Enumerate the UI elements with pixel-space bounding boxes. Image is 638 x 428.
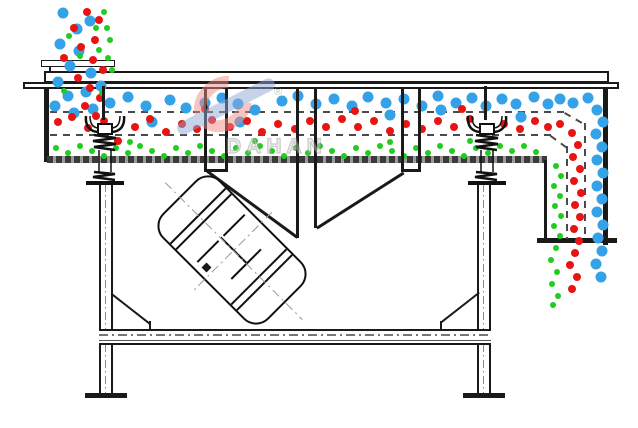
green-particle-dot xyxy=(107,37,113,43)
red-particle-dot xyxy=(556,120,564,128)
red-particle-dot xyxy=(243,117,251,125)
green-particle-dot xyxy=(281,153,287,159)
green-particle-dot xyxy=(269,148,275,154)
green-particle-dot xyxy=(61,88,67,94)
green-particle-dot xyxy=(553,245,559,251)
green-particle-dot xyxy=(558,173,564,179)
green-particle-dot xyxy=(425,150,431,156)
red-particle-dot xyxy=(81,102,89,110)
green-particle-dot xyxy=(550,302,556,308)
red-particle-dot xyxy=(258,128,266,136)
support-foot-left xyxy=(85,393,127,398)
blue-particle-dot xyxy=(58,8,69,19)
green-particle-dot xyxy=(353,145,359,151)
blue-particle-dot xyxy=(591,259,602,270)
green-particle-dot xyxy=(557,193,563,199)
blue-particle-dot xyxy=(598,220,609,231)
blue-particle-dot xyxy=(436,105,447,116)
motor-flange-line-1 xyxy=(223,214,246,237)
blue-particle-dot xyxy=(233,99,244,110)
red-particle-dot xyxy=(193,125,201,133)
blue-particle-dot xyxy=(385,110,396,121)
base-beam-inner-line xyxy=(99,340,491,341)
blue-particle-dot xyxy=(497,94,508,105)
red-particle-dot xyxy=(322,123,330,131)
center-hanger-left xyxy=(296,88,299,238)
red-particle-dot xyxy=(99,66,107,74)
spring-hanger-rod-left xyxy=(102,86,105,120)
blue-particle-dot xyxy=(250,105,261,116)
green-particle-dot xyxy=(558,213,564,219)
green-particle-dot xyxy=(341,153,347,159)
blue-particle-dot xyxy=(597,246,608,257)
red-particle-dot xyxy=(458,105,466,113)
green-particle-dot xyxy=(53,145,59,151)
red-particle-dot xyxy=(86,84,94,92)
motor-flange-line-2 xyxy=(197,240,220,263)
support-leg-right xyxy=(477,184,491,394)
blue-particle-dot xyxy=(592,105,603,116)
blue-particle-dot xyxy=(105,98,116,109)
green-particle-dot xyxy=(365,150,371,156)
hanger-boot-2-left xyxy=(401,88,404,172)
green-particle-dot xyxy=(551,183,557,189)
green-particle-dot xyxy=(257,143,263,149)
blue-particle-dot xyxy=(381,98,392,109)
green-particle-dot xyxy=(553,163,559,169)
red-particle-dot xyxy=(274,120,282,128)
green-particle-dot xyxy=(552,203,558,209)
blue-particle-dot xyxy=(592,155,603,166)
red-particle-dot xyxy=(576,165,584,173)
red-particle-dot xyxy=(386,127,394,135)
blue-particle-dot xyxy=(165,95,176,106)
green-particle-dot xyxy=(65,150,71,156)
red-particle-dot xyxy=(89,56,97,64)
blue-particle-dot xyxy=(568,98,579,109)
blue-particle-dot xyxy=(555,94,566,105)
blue-particle-dot xyxy=(591,129,602,140)
green-particle-dot xyxy=(185,150,191,156)
red-particle-dot xyxy=(338,115,346,123)
screen-deck-upper-dashed xyxy=(50,111,567,113)
gusset-left-edge xyxy=(149,321,151,330)
red-particle-dot xyxy=(70,24,78,32)
green-particle-dot xyxy=(329,148,335,154)
blue-particle-dot xyxy=(329,94,340,105)
blue-particle-dot xyxy=(65,61,76,72)
green-particle-dot xyxy=(533,149,539,155)
green-particle-dot xyxy=(245,150,251,156)
green-particle-dot xyxy=(437,143,443,149)
screen-box-left-wall xyxy=(44,88,49,162)
green-particle-dot xyxy=(209,148,215,154)
motor-cross-centerline xyxy=(191,212,272,293)
blue-particle-dot xyxy=(597,142,608,153)
green-particle-dot xyxy=(101,9,107,15)
red-particle-dot xyxy=(531,117,539,125)
blue-particle-dot xyxy=(123,92,134,103)
hanger-boot-1-right xyxy=(225,88,228,172)
blue-particle-dot xyxy=(583,93,594,104)
red-particle-dot xyxy=(146,115,154,123)
red-particle-dot xyxy=(570,225,578,233)
red-particle-dot xyxy=(68,113,76,121)
green-particle-dot xyxy=(149,148,155,154)
green-particle-dot xyxy=(161,153,167,159)
gusset-right-edge xyxy=(440,321,442,330)
blue-particle-dot xyxy=(596,272,607,283)
red-particle-dot xyxy=(575,237,583,245)
support-foot-right xyxy=(463,393,505,398)
red-particle-dot xyxy=(208,116,216,124)
red-particle-dot xyxy=(91,36,99,44)
vibrating-screen-diagram: ® DAHAN xyxy=(0,0,638,428)
green-particle-dot xyxy=(387,139,393,145)
green-particle-dot xyxy=(317,143,323,149)
blue-particle-dot xyxy=(277,96,288,107)
blue-particle-dot xyxy=(543,99,554,110)
base-beam-centerline xyxy=(99,334,491,336)
blue-particle-dot xyxy=(141,101,152,112)
blue-particle-dot xyxy=(592,207,603,218)
green-particle-dot xyxy=(305,150,311,156)
red-particle-dot xyxy=(569,153,577,161)
red-particle-dot xyxy=(576,213,584,221)
red-particle-dot xyxy=(306,117,314,125)
green-particle-dot xyxy=(551,223,557,229)
red-particle-dot xyxy=(574,141,582,149)
red-particle-dot xyxy=(131,123,139,131)
green-particle-dot xyxy=(389,148,395,154)
red-particle-dot xyxy=(566,261,574,269)
red-particle-dot xyxy=(570,177,578,185)
screen-deck-lower-drop-dashed xyxy=(566,146,568,239)
red-particle-dot xyxy=(571,201,579,209)
spring-assembly-left xyxy=(82,116,128,188)
green-particle-dot xyxy=(377,143,383,149)
blue-particle-dot xyxy=(181,103,192,114)
center-hanger-right xyxy=(314,88,317,228)
blue-particle-dot xyxy=(50,101,61,112)
green-particle-dot xyxy=(554,269,560,275)
blue-particle-dot xyxy=(529,92,540,103)
red-particle-dot xyxy=(568,129,576,137)
hanger-boot-2-right xyxy=(418,88,421,172)
blue-particle-dot xyxy=(53,77,64,88)
blue-particle-dot xyxy=(516,112,527,123)
red-particle-dot xyxy=(434,117,442,125)
blue-particle-dot xyxy=(593,233,604,244)
screen-deck-upper-drop-dashed xyxy=(584,123,586,239)
red-particle-dot xyxy=(162,128,170,136)
blue-particle-dot xyxy=(592,181,603,192)
blue-particle-dot xyxy=(363,92,374,103)
green-particle-dot xyxy=(197,143,203,149)
red-particle-dot xyxy=(95,16,103,24)
green-particle-dot xyxy=(105,55,111,61)
red-particle-dot xyxy=(178,120,186,128)
green-particle-dot xyxy=(233,145,239,151)
red-particle-dot xyxy=(83,8,91,16)
green-particle-dot xyxy=(96,47,102,53)
red-particle-dot xyxy=(571,249,579,257)
blue-particle-dot xyxy=(86,68,97,79)
red-particle-dot xyxy=(544,123,552,131)
red-particle-dot xyxy=(354,123,362,131)
hanger-boot-1-left xyxy=(204,88,207,172)
green-particle-dot xyxy=(555,293,561,299)
spring-assembly-right xyxy=(464,116,510,188)
green-particle-dot xyxy=(449,148,455,154)
green-particle-dot xyxy=(521,143,527,149)
blue-particle-dot xyxy=(597,194,608,205)
red-particle-dot xyxy=(351,107,359,115)
green-particle-dot xyxy=(93,25,99,31)
blue-particle-dot xyxy=(511,99,522,110)
red-particle-dot xyxy=(516,125,524,133)
green-particle-dot xyxy=(66,33,72,39)
support-leg-left xyxy=(99,184,113,394)
discharge-chute-inner-wall xyxy=(544,160,547,242)
green-particle-dot xyxy=(137,143,143,149)
green-particle-dot xyxy=(548,257,554,263)
green-particle-dot xyxy=(557,233,563,239)
green-particle-dot xyxy=(77,53,83,59)
green-particle-dot xyxy=(173,145,179,151)
red-particle-dot xyxy=(370,117,378,125)
green-particle-dot xyxy=(549,281,555,287)
blue-particle-dot xyxy=(55,39,66,50)
hanger-boot-2-cap xyxy=(401,169,421,172)
blue-particle-dot xyxy=(598,117,609,128)
screen-box-flange-band xyxy=(23,82,619,89)
spring-hanger-rod-right xyxy=(484,86,487,120)
red-particle-dot xyxy=(568,285,576,293)
support-leg-left-centerline xyxy=(105,184,106,394)
blue-particle-dot xyxy=(598,168,609,179)
green-particle-dot xyxy=(109,67,115,73)
red-particle-dot xyxy=(573,273,581,281)
green-particle-dot xyxy=(104,25,110,31)
red-particle-dot xyxy=(54,118,62,126)
green-particle-dot xyxy=(252,138,258,144)
red-particle-dot xyxy=(450,123,458,131)
red-particle-dot xyxy=(74,74,82,82)
red-particle-dot xyxy=(77,43,85,51)
support-leg-right-centerline xyxy=(483,184,484,394)
blue-particle-dot xyxy=(467,93,478,104)
red-particle-dot xyxy=(577,189,585,197)
blue-particle-dot xyxy=(433,91,444,102)
base-beam xyxy=(99,329,491,345)
red-particle-dot xyxy=(60,54,68,62)
